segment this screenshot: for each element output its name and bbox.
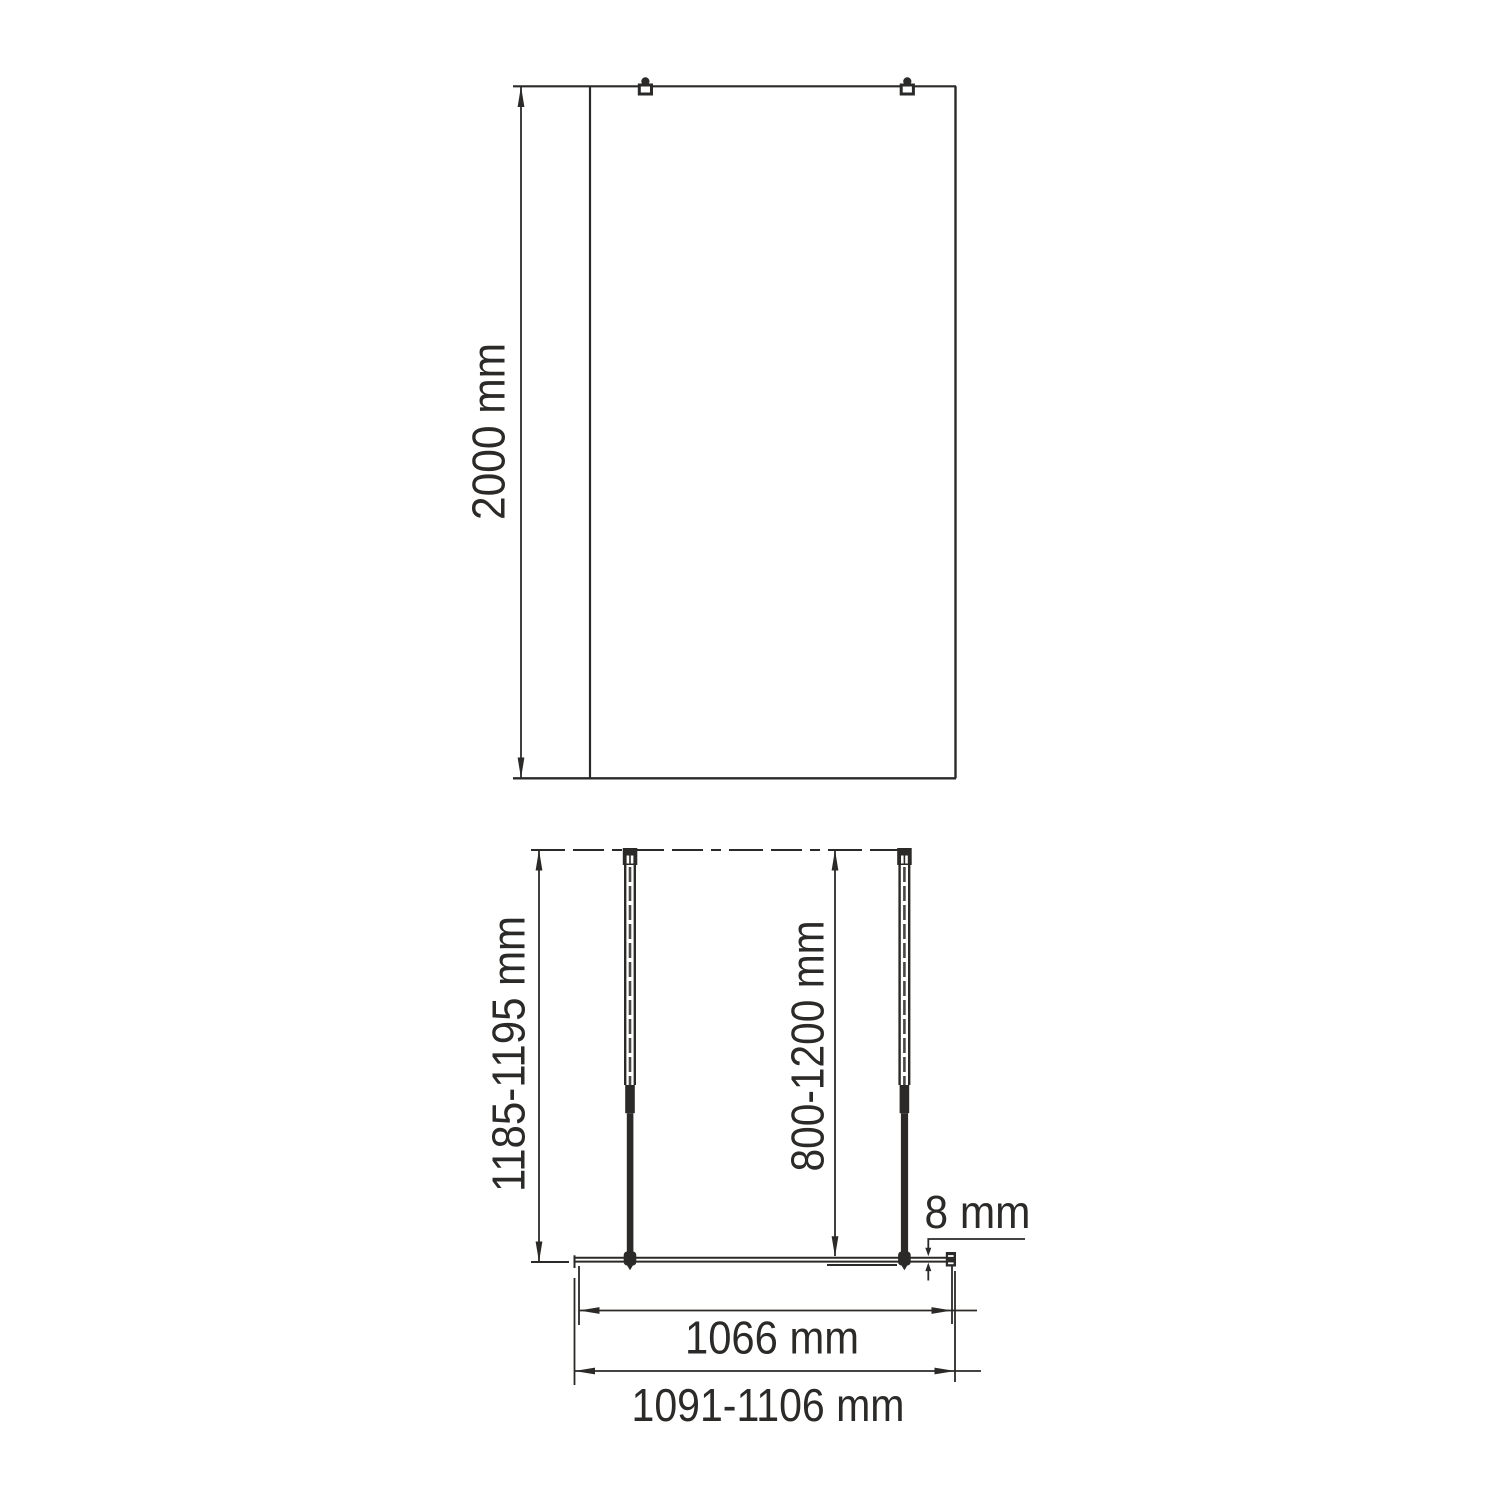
svg-text:1066 mm: 1066 mm	[685, 1312, 859, 1364]
svg-text:2000 mm: 2000 mm	[463, 343, 515, 520]
svg-text:800-1200 mm: 800-1200 mm	[782, 921, 834, 1172]
svg-text:1185-1195 mm: 1185-1195 mm	[483, 916, 535, 1192]
svg-text:1091-1106 mm: 1091-1106 mm	[632, 1379, 905, 1431]
svg-text:8 mm: 8 mm	[925, 1186, 1031, 1238]
